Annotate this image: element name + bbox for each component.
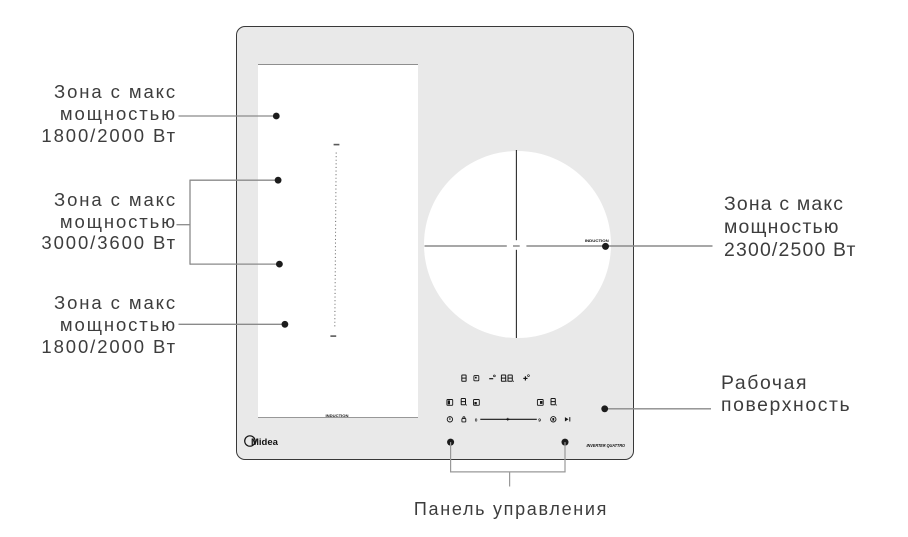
svg-text:INDUCTION: INDUCTION	[585, 238, 609, 243]
svg-text:INVERTER QUATTRO: INVERTER QUATTRO	[587, 443, 626, 449]
svg-text:0: 0	[475, 417, 478, 423]
svg-text:Midea: Midea	[251, 437, 279, 448]
svg-text:INDUCTION: INDUCTION	[326, 414, 349, 418]
svg-text:9: 9	[538, 417, 541, 423]
